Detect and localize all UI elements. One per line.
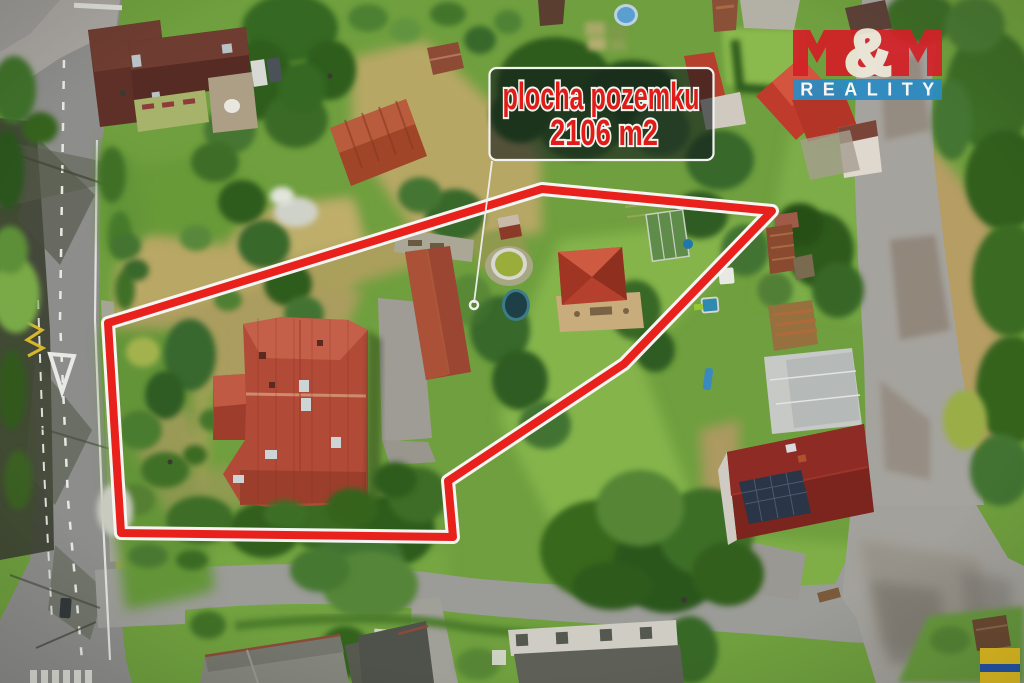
svg-text:&: &	[845, 17, 891, 89]
svg-text:REALITY: REALITY	[800, 80, 944, 100]
svg-text:2106 m2: 2106 m2	[550, 112, 658, 153]
